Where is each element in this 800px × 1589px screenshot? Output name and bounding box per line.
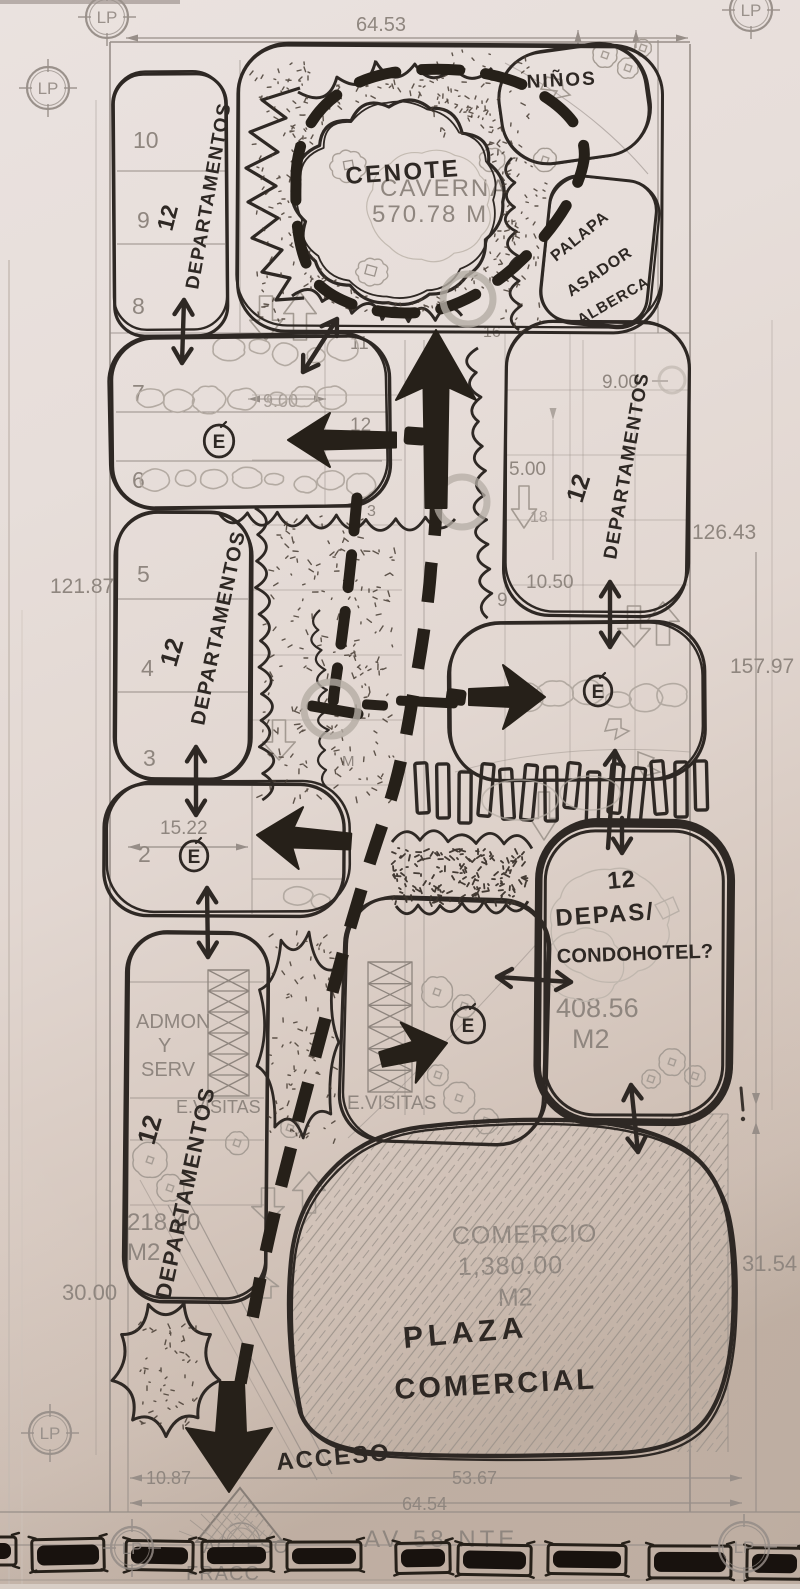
svg-text:E: E — [462, 1016, 475, 1037]
svg-text:10: 10 — [133, 127, 159, 153]
svg-text:E: E — [592, 682, 605, 703]
svg-text:E: E — [188, 847, 201, 868]
svg-text:64.54: 64.54 — [402, 1494, 447, 1514]
svg-text:5: 5 — [137, 561, 150, 587]
svg-text:30.00: 30.00 — [62, 1280, 117, 1305]
svg-text:5.00: 5.00 — [509, 459, 546, 480]
svg-text:LP: LP — [40, 1424, 61, 1443]
svg-text:M2: M2 — [572, 1024, 610, 1054]
svg-text:2: 2 — [138, 841, 151, 867]
svg-text:10.50: 10.50 — [526, 572, 574, 593]
svg-text:157.97: 157.97 — [730, 655, 794, 678]
svg-text:LP: LP — [38, 79, 59, 98]
svg-text:LP: LP — [122, 1539, 143, 1558]
svg-text:M: M — [342, 753, 355, 770]
svg-text:9: 9 — [497, 590, 508, 611]
svg-text:31.54: 31.54 — [742, 1251, 797, 1276]
svg-text:LP: LP — [97, 8, 118, 27]
svg-text:NIÑOS: NIÑOS — [526, 67, 597, 93]
svg-text:64.53: 64.53 — [356, 14, 406, 36]
svg-text:9: 9 — [137, 207, 150, 233]
svg-text:E: E — [213, 432, 226, 453]
svg-text:12: 12 — [606, 866, 637, 895]
svg-text:3: 3 — [367, 503, 376, 520]
svg-text:FRACC: FRACC — [186, 1563, 260, 1584]
svg-text:4: 4 — [141, 655, 154, 681]
svg-text:AV 58 NTE: AV 58 NTE — [364, 1526, 518, 1553]
svg-text:LP: LP — [741, 1, 762, 20]
svg-text:Y: Y — [158, 1035, 171, 1057]
svg-text:ADMON: ADMON — [136, 1011, 210, 1033]
svg-text:6: 6 — [132, 467, 145, 493]
svg-text:570.78 M: 570.78 M — [372, 201, 488, 228]
svg-text:10.87: 10.87 — [146, 1468, 191, 1488]
svg-text:SERV: SERV — [141, 1059, 196, 1081]
svg-text:121.87: 121.87 — [50, 575, 114, 598]
svg-text:8: 8 — [132, 293, 145, 319]
svg-text:18: 18 — [530, 509, 548, 526]
svg-text:15.22: 15.22 — [160, 818, 208, 839]
svg-text:126.43: 126.43 — [692, 521, 756, 544]
svg-text:53.67: 53.67 — [452, 1468, 497, 1488]
svg-text:3: 3 — [143, 745, 156, 771]
svg-text:M2: M2 — [127, 1239, 160, 1266]
svg-text:LP: LP — [734, 1538, 755, 1557]
